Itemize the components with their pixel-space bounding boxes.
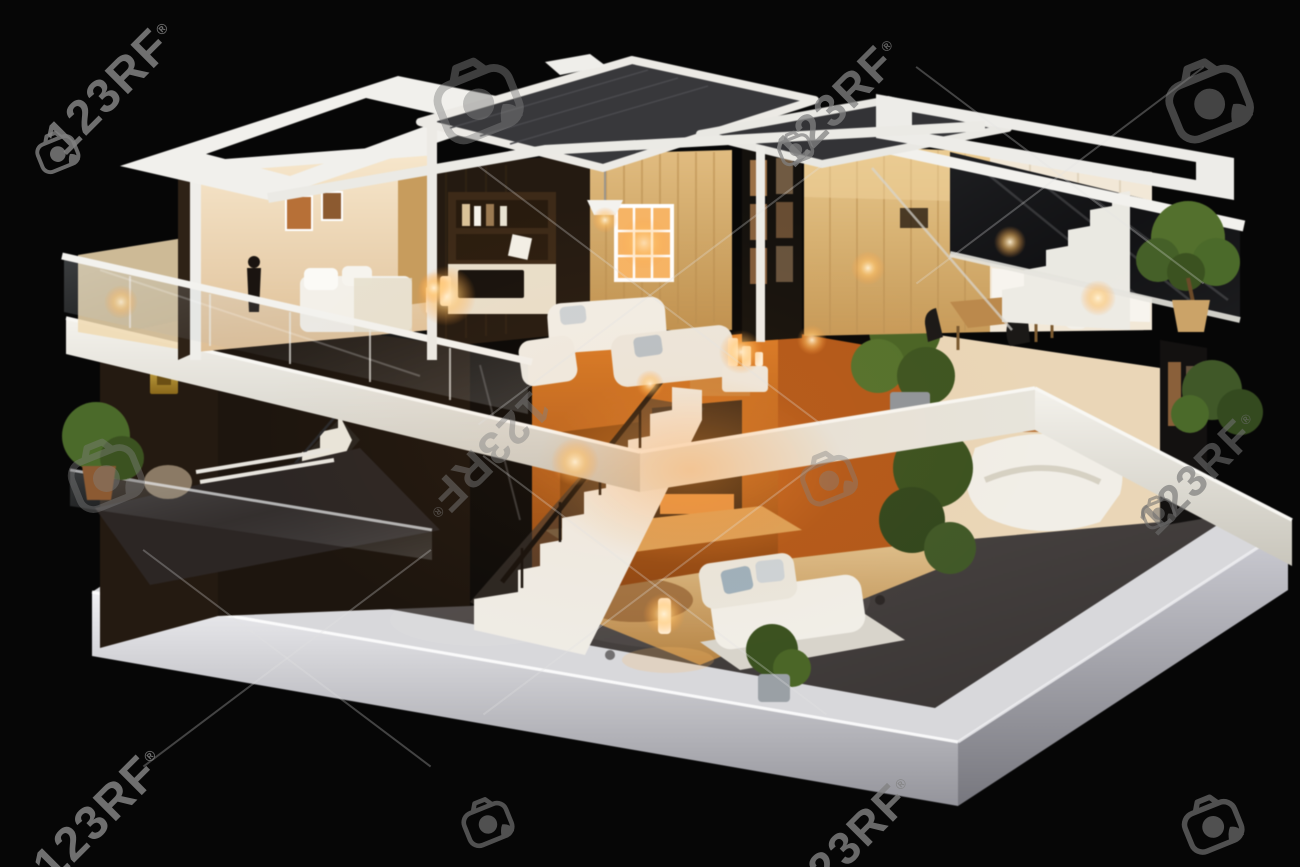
figurine [248,256,260,268]
house-model-illustration [0,0,1300,867]
stock-photo-house-model: 123RF® 123RF® 123RF® 123RF® 123RF® 123RF… [0,0,1300,867]
french-door [742,144,802,342]
